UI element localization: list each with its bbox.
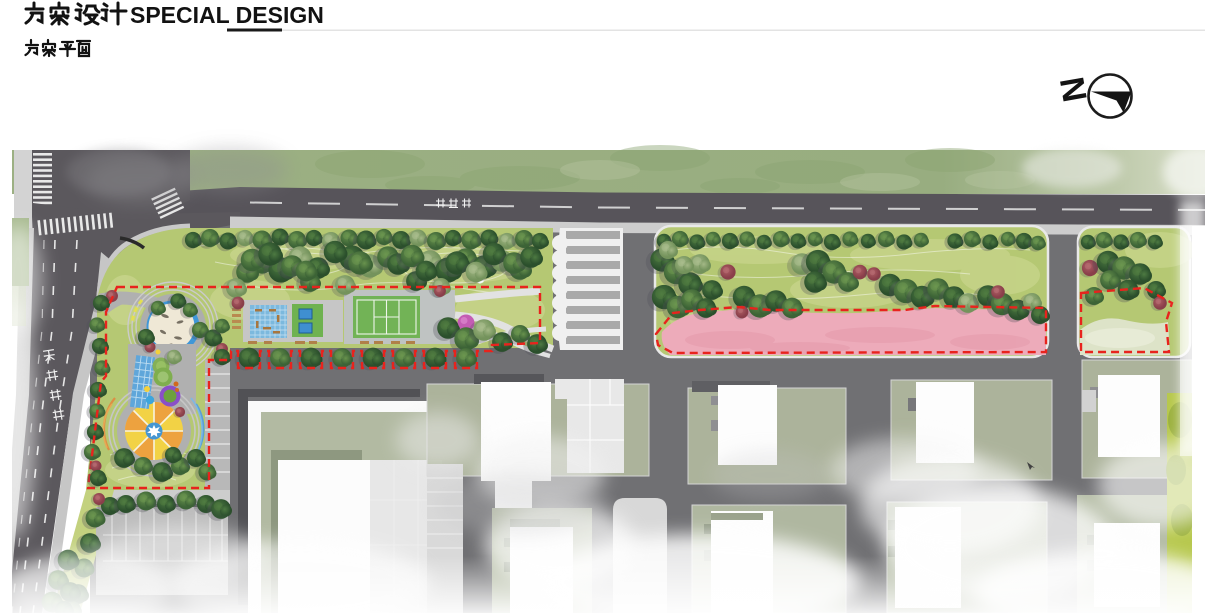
svg-text:SPECIAL DESIGN: SPECIAL DESIGN [130, 2, 324, 28]
